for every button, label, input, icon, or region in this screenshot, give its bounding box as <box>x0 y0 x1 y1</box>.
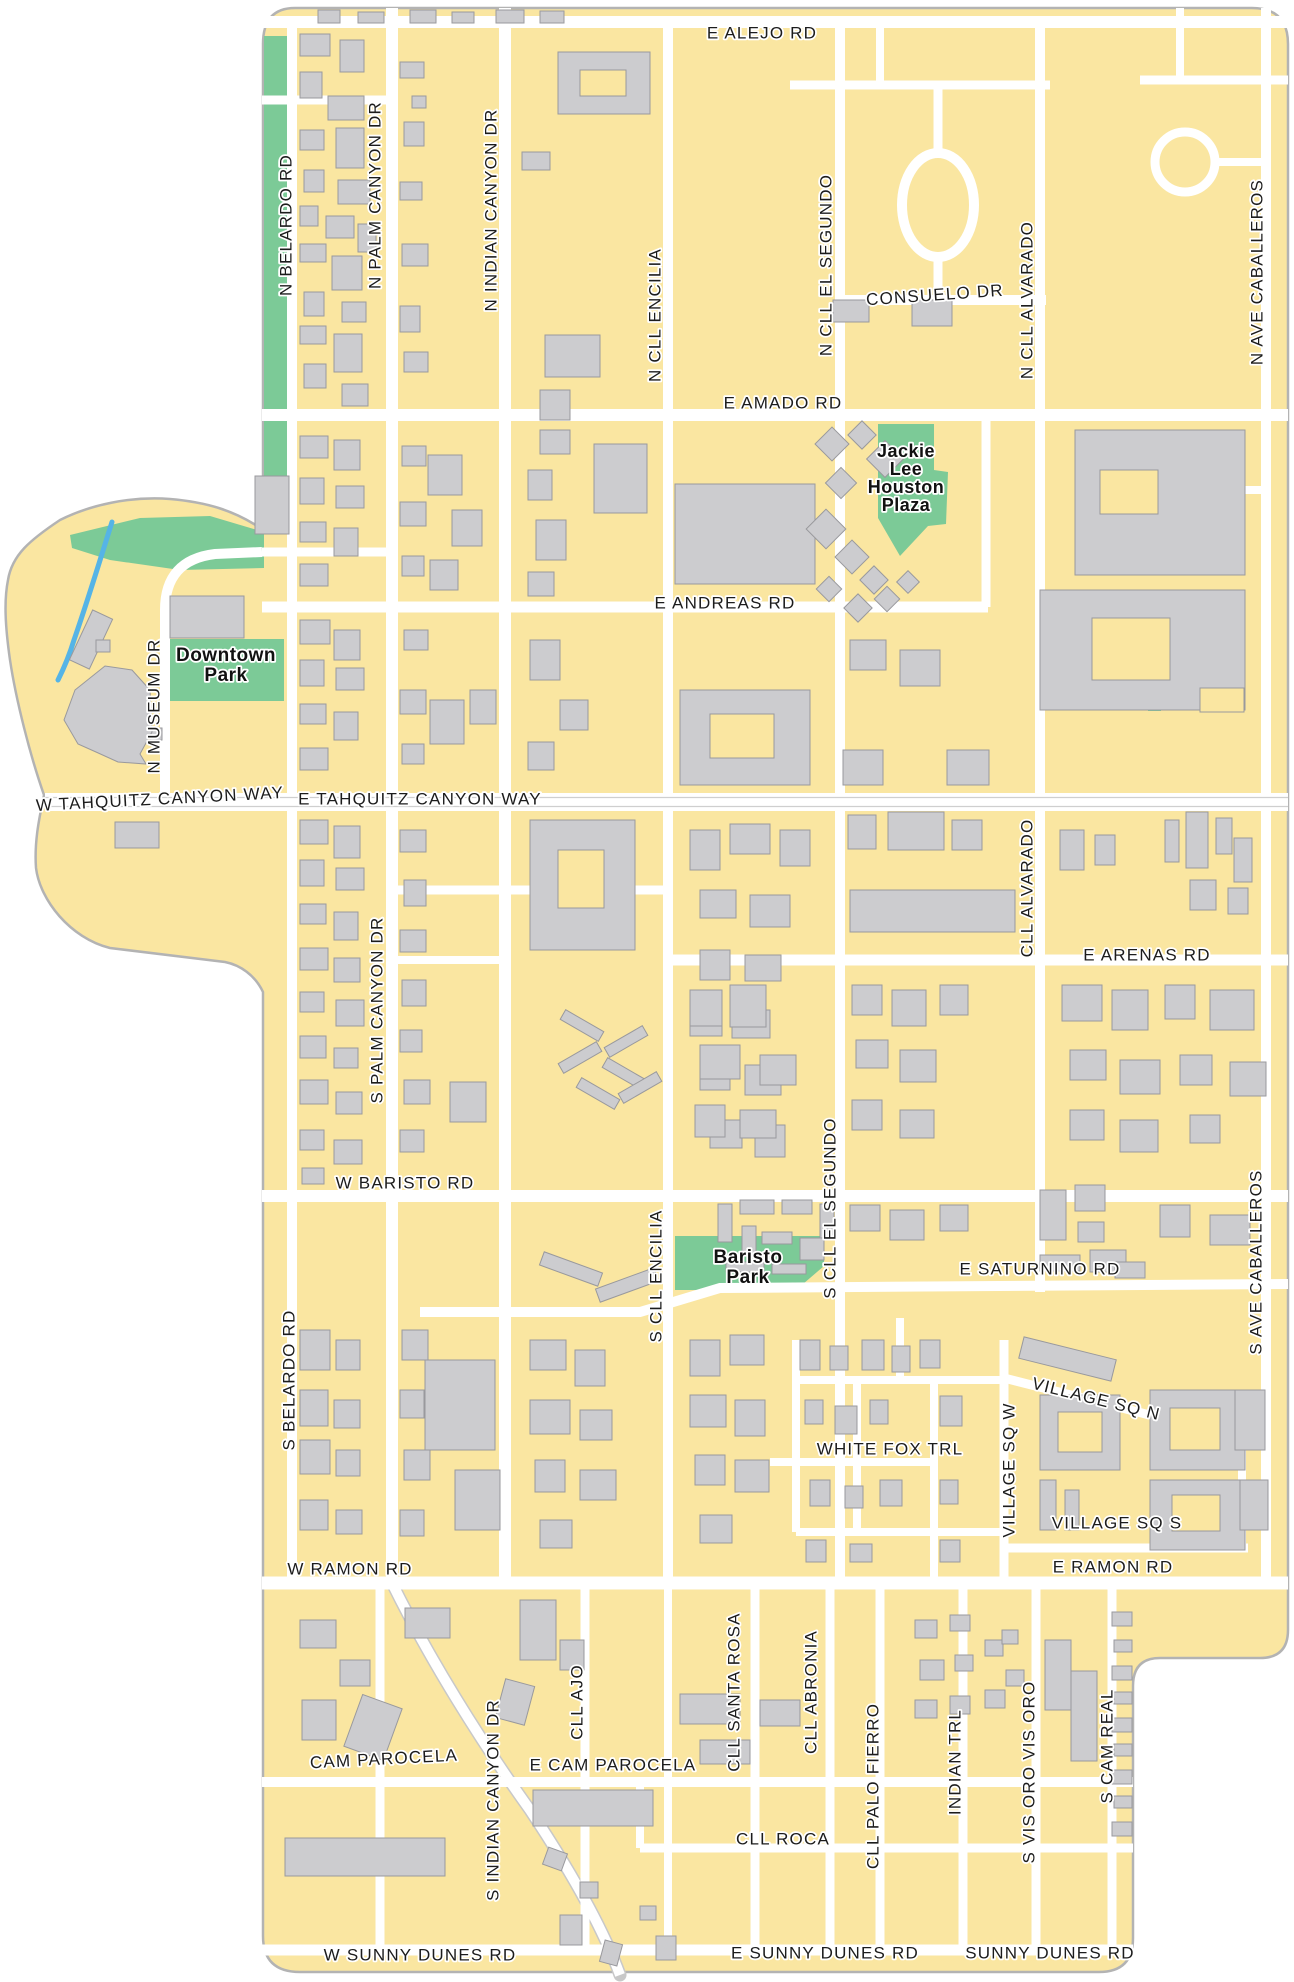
building <box>1180 1055 1212 1085</box>
street-label: VILLAGE SQ W <box>999 1402 1018 1537</box>
street-label: CLL PALO FIERRO <box>863 1703 882 1869</box>
building <box>334 528 358 556</box>
building <box>1190 1115 1220 1143</box>
building <box>300 1330 330 1370</box>
building <box>900 650 940 686</box>
building <box>540 430 570 454</box>
building <box>880 1480 902 1506</box>
building <box>580 1882 598 1898</box>
building <box>1112 1822 1132 1836</box>
building <box>334 826 360 858</box>
building <box>300 1036 326 1058</box>
building <box>404 352 428 372</box>
building <box>300 1080 328 1104</box>
building <box>575 1350 605 1386</box>
building <box>690 1340 720 1376</box>
building <box>428 455 462 495</box>
building <box>470 690 496 724</box>
building <box>1190 880 1216 910</box>
building <box>915 1700 937 1718</box>
building <box>300 1620 336 1648</box>
building <box>332 256 362 290</box>
building <box>400 830 426 852</box>
building <box>536 520 566 560</box>
building <box>334 1400 360 1428</box>
building <box>334 334 362 372</box>
map-canvas: E ALEJO RDN BELARDO RDN PALM CANYON DRN … <box>0 0 1294 1982</box>
building <box>404 1080 430 1104</box>
building <box>300 992 324 1012</box>
building <box>400 1510 424 1536</box>
building <box>300 860 324 886</box>
building <box>304 364 326 388</box>
building <box>533 1790 653 1826</box>
park-label: Houston <box>868 477 944 497</box>
building <box>412 96 426 108</box>
building <box>760 1700 800 1726</box>
building <box>300 704 326 724</box>
street-label: N AVE CABALLEROS <box>1247 179 1266 365</box>
building <box>318 10 340 23</box>
building <box>528 742 554 770</box>
building <box>915 1620 937 1638</box>
building <box>535 1460 565 1492</box>
building <box>852 1100 882 1130</box>
street-label: E ARENAS RD <box>1083 945 1211 964</box>
building <box>892 1346 910 1372</box>
building <box>402 556 424 576</box>
building <box>594 444 647 513</box>
park-label: Baristo <box>714 1247 783 1268</box>
building <box>302 1700 336 1740</box>
building <box>300 522 326 542</box>
building <box>342 302 366 322</box>
street-label: SUNNY DUNES RD <box>965 1943 1135 1962</box>
building <box>952 820 982 850</box>
building <box>700 1515 732 1543</box>
building <box>530 640 560 680</box>
building <box>800 1340 820 1370</box>
building <box>540 1520 572 1548</box>
building <box>695 1455 725 1485</box>
park-label: Downtown <box>176 645 276 666</box>
street-label: WHITE FOX TRL <box>817 1439 964 1458</box>
building <box>496 10 524 23</box>
building <box>920 1660 944 1680</box>
building <box>400 1130 424 1152</box>
building <box>1160 1205 1190 1237</box>
street-label: N CLL EL SEGUNDO <box>816 174 835 356</box>
street-label: S INDIAN CANYON DR <box>483 1699 502 1901</box>
building <box>402 1330 428 1360</box>
building <box>304 170 324 192</box>
building <box>300 820 328 844</box>
building-courtyard <box>710 714 774 758</box>
park-label: Park <box>726 1267 769 1288</box>
building <box>400 306 420 332</box>
building <box>528 470 552 500</box>
street-label: S AVE CABALLEROS <box>1246 1169 1265 1354</box>
building-courtyard <box>1170 1408 1220 1450</box>
building <box>730 824 770 854</box>
building <box>1240 1480 1268 1530</box>
building <box>404 1450 430 1480</box>
building <box>740 1110 776 1138</box>
building <box>940 985 968 1015</box>
street-label: N BELARDO RD <box>276 154 295 296</box>
building <box>402 244 428 266</box>
street-label: W BARISTO RD <box>336 1173 475 1192</box>
building <box>985 1690 1005 1708</box>
street-label: E ALEJO RD <box>707 23 817 42</box>
building <box>870 1400 888 1424</box>
building <box>410 10 436 23</box>
street-label: N INDIAN CANYON DR <box>481 109 500 312</box>
street-label: N MUSEUM DR <box>144 638 163 773</box>
building <box>285 1838 445 1876</box>
street-label: VILLAGE SQ S <box>1052 1513 1183 1532</box>
building <box>528 572 554 596</box>
building <box>580 1470 616 1500</box>
building <box>1112 990 1148 1030</box>
building <box>340 1660 370 1686</box>
building <box>1114 1692 1132 1704</box>
building-courtyard <box>580 70 626 96</box>
building <box>334 630 360 660</box>
building <box>833 300 869 322</box>
building <box>850 1205 880 1231</box>
building <box>400 1390 424 1418</box>
building <box>540 11 564 23</box>
building <box>1230 1062 1266 1096</box>
building-courtyard <box>558 850 604 908</box>
building <box>1060 830 1084 870</box>
building <box>1062 985 1102 1021</box>
building <box>1120 1120 1158 1152</box>
building-courtyard <box>1058 1412 1102 1452</box>
street-label: CLL ALVARADO <box>1017 819 1036 958</box>
building <box>300 478 324 504</box>
street-label: CLL AJO <box>567 1664 586 1740</box>
building <box>404 122 424 146</box>
building <box>850 640 886 670</box>
park-label: Lee <box>890 459 923 479</box>
street-label: W SUNNY DUNES RD <box>324 1945 517 1964</box>
building <box>1002 1630 1018 1644</box>
building <box>888 812 944 850</box>
building <box>400 690 426 714</box>
city-map[interactable]: E ALEJO RDN BELARDO RDN PALM CANYON DRN … <box>0 0 1294 1982</box>
building <box>1071 1671 1097 1761</box>
building <box>425 1360 495 1450</box>
building <box>300 660 324 686</box>
building <box>1120 1060 1160 1094</box>
street-label: W RAMON RD <box>287 1559 412 1578</box>
building <box>455 1470 500 1530</box>
building <box>1228 888 1248 914</box>
building <box>1165 820 1179 862</box>
street-label: S BELARDO RD <box>279 1310 298 1451</box>
building <box>255 476 289 534</box>
building <box>1045 1640 1071 1710</box>
building <box>955 1655 973 1671</box>
building <box>336 1450 360 1476</box>
building <box>530 1400 570 1434</box>
building <box>690 1395 726 1427</box>
building <box>890 1210 924 1240</box>
building <box>300 244 326 262</box>
building <box>1112 1612 1132 1626</box>
street-label: N CLL ALVARADO <box>1017 221 1036 379</box>
building <box>892 990 926 1026</box>
building <box>848 815 876 849</box>
building <box>334 1048 358 1068</box>
building <box>845 1486 863 1508</box>
building <box>402 446 426 466</box>
street-label: S CLL ENCILIA <box>646 1209 665 1342</box>
building <box>700 950 730 980</box>
building <box>560 700 588 730</box>
building <box>1075 1185 1105 1211</box>
building <box>730 1335 764 1365</box>
building <box>300 206 318 226</box>
building <box>580 1410 612 1440</box>
street-label: E RAMON RD <box>1053 1557 1174 1576</box>
building <box>302 1168 324 1184</box>
building <box>430 560 458 590</box>
building <box>336 868 364 890</box>
building <box>780 830 810 866</box>
street-label: CLL ABRONIA <box>801 1630 820 1754</box>
building <box>404 630 428 650</box>
building <box>334 440 360 470</box>
building <box>900 1050 936 1082</box>
building <box>745 955 781 981</box>
street-label: CLL ROCA <box>736 1829 830 1848</box>
building <box>400 930 426 952</box>
building <box>1210 990 1254 1030</box>
building <box>690 830 720 870</box>
building <box>402 744 424 764</box>
building <box>300 1130 324 1150</box>
building <box>342 384 368 406</box>
building <box>334 1140 362 1164</box>
building <box>400 182 422 200</box>
park-label: Park <box>204 665 247 686</box>
building <box>656 1936 676 1960</box>
building <box>1112 1666 1132 1680</box>
street-label: S PALM CANYON DR <box>367 916 386 1103</box>
building <box>810 1480 830 1506</box>
building <box>805 1400 823 1424</box>
building <box>300 1500 328 1530</box>
building <box>1070 1110 1104 1140</box>
street-label: S CAM REAL <box>1097 1689 1116 1804</box>
building <box>400 62 424 78</box>
building-courtyard <box>1092 618 1170 680</box>
street-label: E TAHQUITZ CANYON WAY <box>298 789 542 808</box>
building <box>300 948 328 970</box>
building <box>326 216 354 238</box>
building <box>336 1510 362 1534</box>
building <box>304 292 324 316</box>
building <box>985 1640 1003 1656</box>
building <box>336 128 364 168</box>
building <box>96 640 110 652</box>
building <box>300 34 330 56</box>
building <box>115 822 159 848</box>
building <box>430 700 464 744</box>
building <box>856 1040 888 1068</box>
building <box>300 72 322 98</box>
building <box>852 985 882 1015</box>
building <box>358 12 384 23</box>
building <box>1216 818 1232 854</box>
building <box>402 980 426 1006</box>
building <box>640 1906 656 1920</box>
building <box>400 1030 422 1052</box>
street-label: N CLL ENCILIA <box>645 248 664 382</box>
building <box>1095 835 1115 865</box>
building <box>690 990 722 1026</box>
street-label: INDIAN TRL <box>945 1709 964 1815</box>
park-label: Jackie <box>877 441 935 461</box>
building <box>1114 1796 1132 1808</box>
building <box>843 750 883 785</box>
building <box>735 1460 769 1492</box>
street-label: N PALM CANYON DR <box>365 101 384 289</box>
building <box>900 1110 934 1138</box>
building <box>718 1204 732 1242</box>
building <box>830 1346 848 1370</box>
building-courtyard <box>1100 470 1158 514</box>
building <box>950 1615 970 1631</box>
building <box>700 890 736 918</box>
building <box>328 96 364 120</box>
building <box>862 1340 884 1370</box>
building <box>730 985 766 1027</box>
street-label: E SATURNINO RD <box>960 1259 1121 1278</box>
building <box>1114 1744 1132 1756</box>
building <box>940 1205 968 1231</box>
building <box>545 335 600 377</box>
building <box>300 620 330 644</box>
building <box>940 1396 962 1426</box>
building <box>782 1200 812 1214</box>
building <box>452 510 482 546</box>
building <box>404 880 426 906</box>
building <box>336 668 364 690</box>
building <box>1165 985 1195 1019</box>
building-courtyard <box>1200 688 1244 712</box>
street-label: CLL SANTA ROSA <box>724 1612 743 1771</box>
building <box>940 1480 958 1504</box>
building <box>850 1544 872 1562</box>
building <box>334 912 358 940</box>
building <box>947 750 989 785</box>
building <box>700 1045 740 1079</box>
building <box>940 1540 960 1562</box>
building <box>560 1915 582 1945</box>
park-label: Plaza <box>882 495 931 515</box>
building <box>170 596 244 638</box>
building <box>920 1340 940 1368</box>
building <box>530 1340 566 1370</box>
building <box>1210 1215 1250 1245</box>
building <box>334 958 360 982</box>
building <box>300 436 328 458</box>
building <box>835 1406 857 1434</box>
street-label: E CAM PAROCELA <box>530 1755 697 1774</box>
building <box>334 712 358 740</box>
building <box>1040 1190 1066 1240</box>
building <box>300 564 328 586</box>
building <box>336 1000 364 1026</box>
building <box>675 484 815 584</box>
building <box>740 1200 774 1214</box>
building <box>336 1340 360 1370</box>
building <box>400 502 426 526</box>
building <box>300 904 326 924</box>
street-label: E SUNNY DUNES RD <box>731 1943 919 1962</box>
building <box>540 390 570 420</box>
building <box>405 1608 450 1638</box>
building <box>336 486 364 508</box>
building <box>762 1232 792 1244</box>
building <box>340 40 364 72</box>
street-label: E ANDREAS RD <box>655 593 796 612</box>
building <box>1078 1222 1104 1242</box>
building <box>300 130 324 150</box>
building <box>452 12 474 23</box>
street-label: S VIS ORO VIS ORO <box>1019 1681 1038 1864</box>
building <box>300 1390 328 1426</box>
building <box>806 1540 826 1562</box>
street-label: S CLL EL SEGUNDO <box>820 1117 839 1298</box>
street-label: E AMADO RD <box>724 393 843 412</box>
building <box>300 1440 330 1474</box>
building <box>750 895 790 927</box>
building <box>1114 1640 1132 1652</box>
building <box>1070 1050 1106 1080</box>
building <box>760 1055 796 1085</box>
building <box>450 1082 486 1122</box>
building <box>735 1400 765 1436</box>
building <box>1234 838 1252 882</box>
building <box>300 326 326 344</box>
building <box>1235 1390 1265 1450</box>
building <box>300 748 328 770</box>
building <box>695 1105 725 1137</box>
building <box>522 152 550 170</box>
building <box>1186 812 1208 868</box>
building <box>520 1600 556 1660</box>
building <box>850 890 1015 932</box>
building <box>336 1092 362 1114</box>
